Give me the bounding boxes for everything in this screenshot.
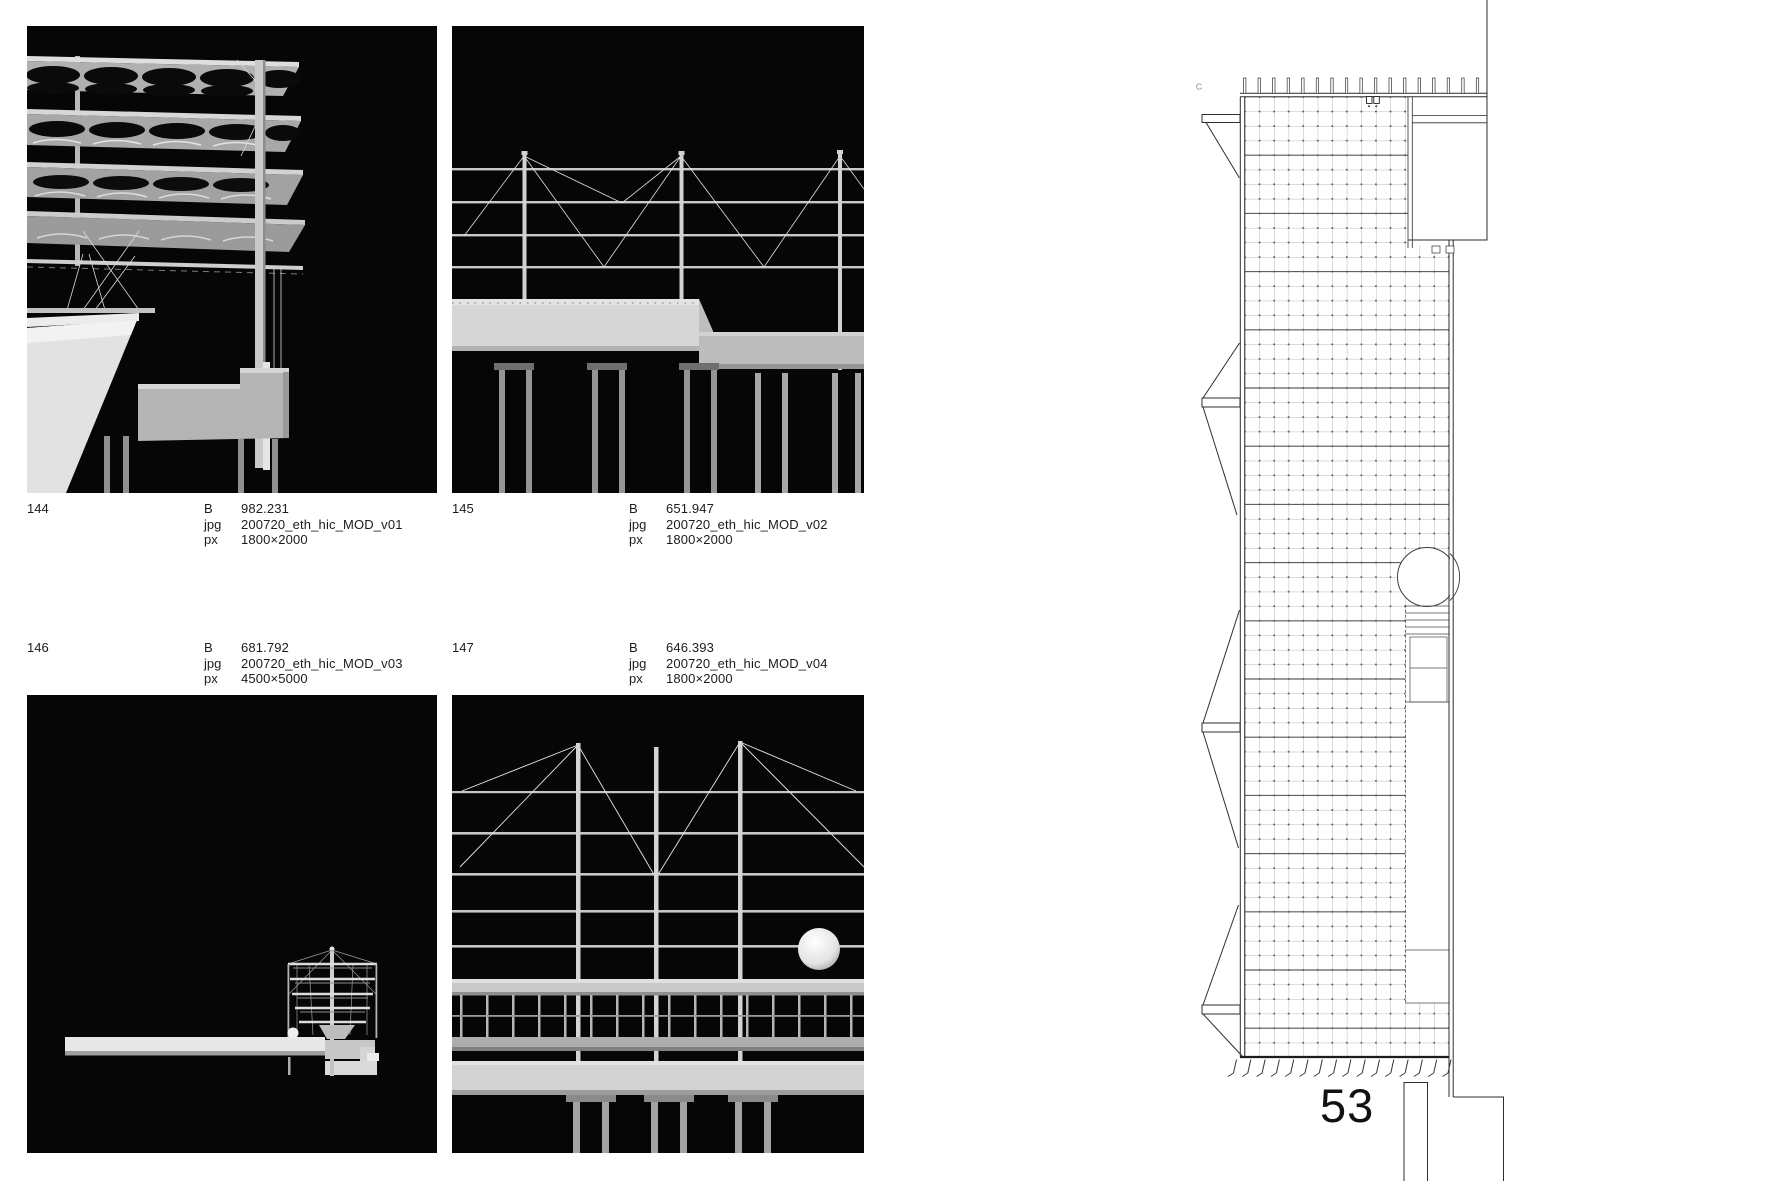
meta-key: B	[629, 640, 666, 656]
render-144-graphic	[27, 26, 437, 493]
meta-key: jpg	[204, 656, 241, 672]
meta-value: 1800×2000	[666, 532, 733, 548]
meta-key: px	[204, 671, 241, 687]
meta-value: 4500×5000	[241, 671, 308, 687]
model-render-146	[27, 695, 437, 1153]
caption-146: 146 B681.792 jpg200720_eth_hic_MOD_v03 p…	[27, 640, 437, 687]
meta-key: px	[629, 532, 666, 548]
figure-number: 147	[452, 640, 474, 656]
page-number: 53	[1320, 1078, 1390, 1133]
meta-key: jpg	[629, 656, 666, 672]
render-147-graphic	[452, 695, 864, 1153]
meta-key: jpg	[204, 517, 241, 533]
catalog-page: 144 B982.231 jpg200720_eth_hic_MOD_v01 p…	[0, 0, 1782, 1181]
meta-key: jpg	[629, 517, 666, 533]
meta-key: px	[204, 532, 241, 548]
meta-key: B	[204, 501, 241, 517]
render-146-graphic	[27, 695, 437, 1153]
meta-value: 1800×2000	[666, 671, 733, 687]
meta-value: 681.792	[241, 640, 289, 656]
meta-value: 200720_eth_hic_MOD_v04	[666, 656, 828, 672]
render-145-graphic	[452, 26, 864, 493]
meta-key: B	[629, 501, 666, 517]
figure-number: 146	[27, 640, 49, 656]
model-render-144	[27, 26, 437, 493]
figure-number: 145	[452, 501, 474, 517]
meta-value: 646.393	[666, 640, 714, 656]
meta-value: 200720_eth_hic_MOD_v01	[241, 517, 403, 533]
caption-144: 144 B982.231 jpg200720_eth_hic_MOD_v01 p…	[27, 501, 437, 548]
meta-value: 1800×2000	[241, 532, 308, 548]
model-render-145	[452, 26, 864, 493]
caption-145: 145 B651.947 jpg200720_eth_hic_MOD_v02 p…	[452, 501, 864, 548]
floor-plan-graphic	[1040, 0, 1563, 1181]
floor-plan-drawing	[1040, 0, 1563, 1181]
figure-number: 144	[27, 501, 49, 517]
model-render-147	[452, 695, 864, 1153]
meta-value: 982.231	[241, 501, 289, 517]
meta-key: px	[629, 671, 666, 687]
meta-value: 200720_eth_hic_MOD_v02	[666, 517, 828, 533]
meta-value: 651.947	[666, 501, 714, 517]
caption-147: 147 B646.393 jpg200720_eth_hic_MOD_v04 p…	[452, 640, 864, 687]
meta-value: 200720_eth_hic_MOD_v03	[241, 656, 403, 672]
meta-key: B	[204, 640, 241, 656]
